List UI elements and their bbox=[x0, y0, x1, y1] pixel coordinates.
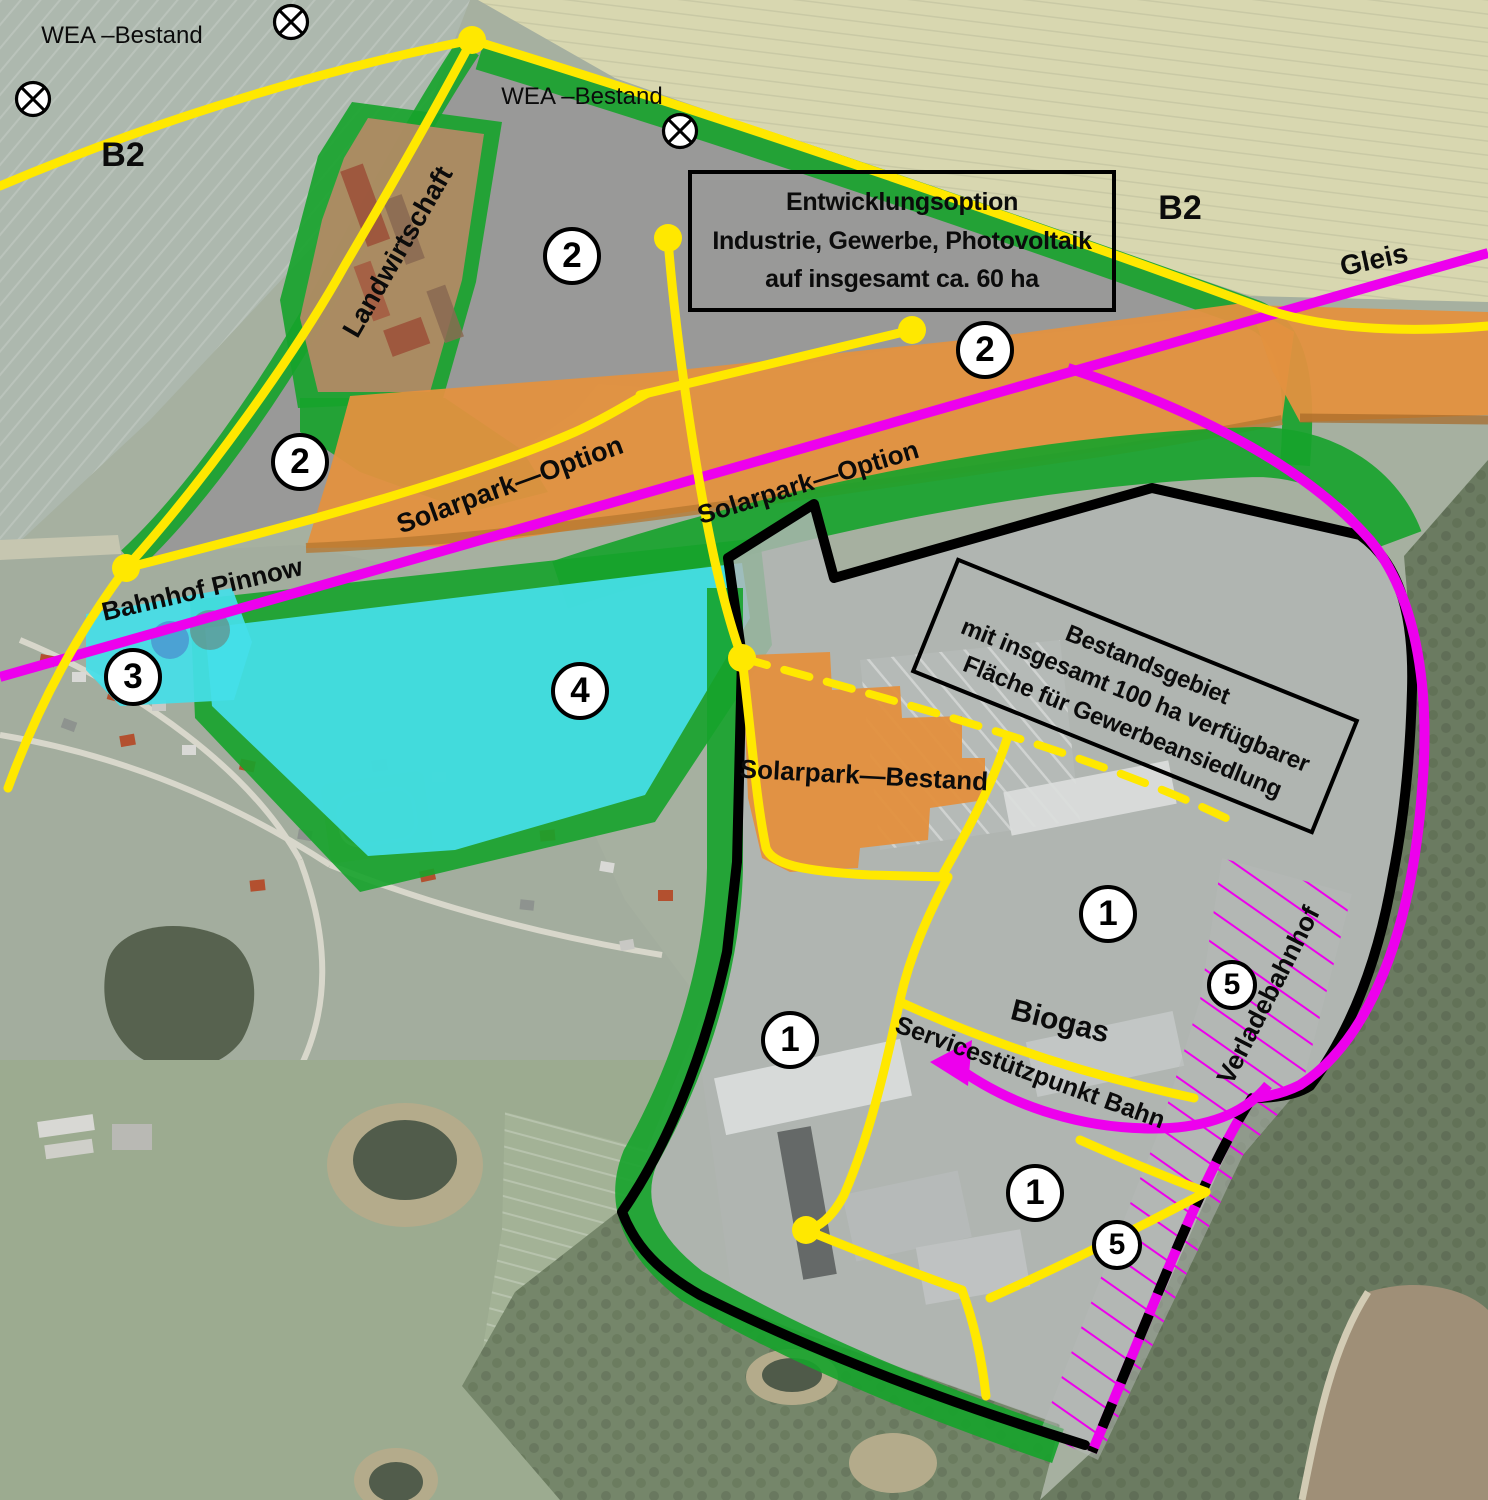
zone-marker-3: 3 bbox=[104, 648, 162, 706]
infobox-line: Industrie, Gewerbe, Photovoltaik bbox=[712, 222, 1091, 261]
zone-marker-1: 1 bbox=[1079, 885, 1137, 943]
site-plan-map: WEA –Bestand WEA –Bestand B2 B2 Gleis La… bbox=[0, 0, 1488, 1500]
label-wea-bestand-nw: WEA –Bestand bbox=[41, 24, 202, 48]
zone-marker-1: 1 bbox=[761, 1011, 819, 1069]
zone-marker-1: 1 bbox=[1006, 1164, 1064, 1222]
zone-marker-2: 2 bbox=[956, 321, 1014, 379]
label-b2-west: B2 bbox=[101, 138, 144, 172]
zone-marker-4: 4 bbox=[551, 662, 609, 720]
zone-marker-5: 5 bbox=[1092, 1220, 1142, 1270]
label-wea-bestand-n: WEA –Bestand bbox=[501, 85, 662, 109]
zone-marker-2: 2 bbox=[543, 227, 601, 285]
zone-marker-2: 2 bbox=[271, 433, 329, 491]
entwicklungsoption-infobox: Entwicklungsoption Industrie, Gewerbe, P… bbox=[688, 170, 1116, 312]
infobox-line: Entwicklungsoption bbox=[786, 183, 1018, 222]
label-b2-east: B2 bbox=[1158, 191, 1201, 225]
wind-turbine-icon bbox=[271, 2, 311, 42]
zone-marker-5: 5 bbox=[1207, 960, 1257, 1010]
infobox-line: auf insgesamt ca. 60 ha bbox=[765, 260, 1039, 299]
wind-turbine-icon bbox=[13, 79, 53, 119]
wind-turbine-icon bbox=[660, 111, 700, 151]
